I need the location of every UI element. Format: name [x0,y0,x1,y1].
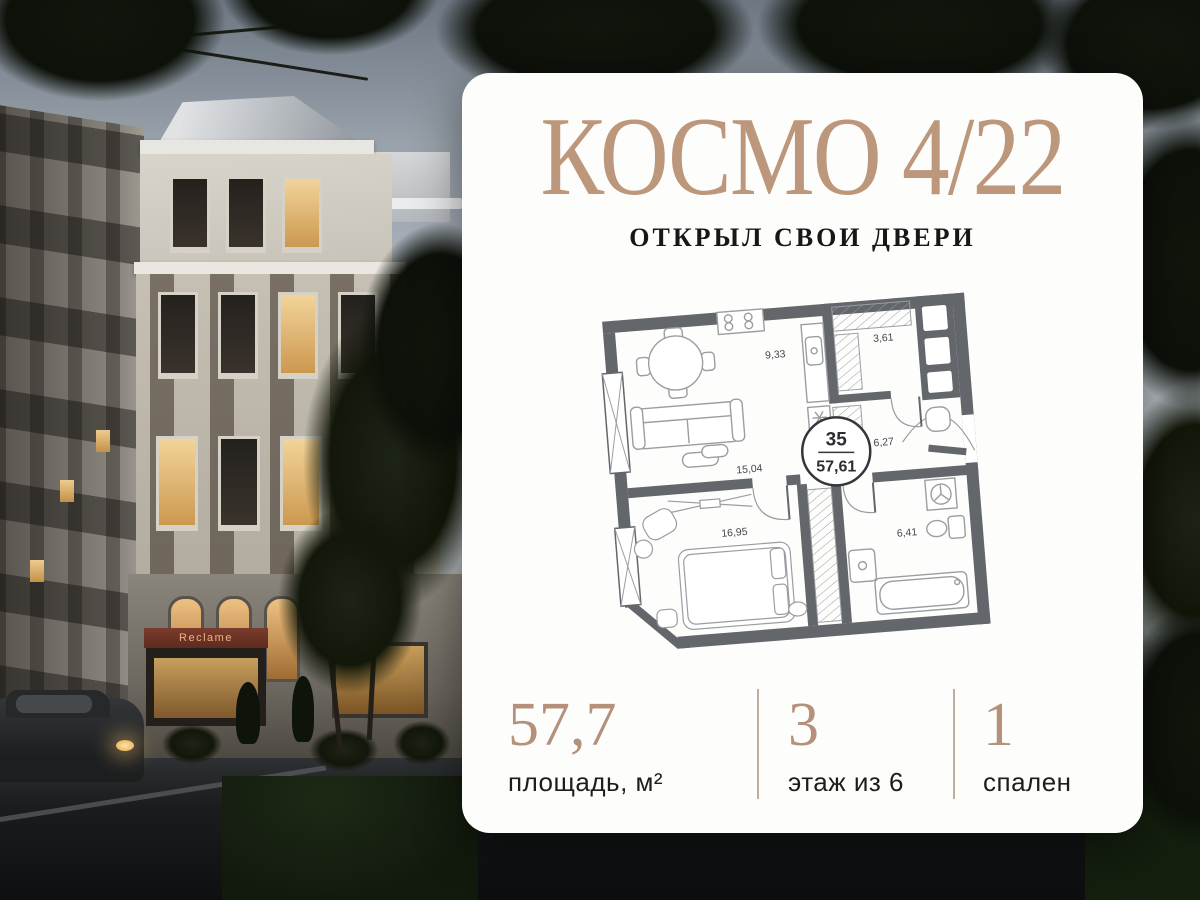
entry-door-gap [962,414,978,463]
stat-floor: 3 этаж из 6 [788,693,904,798]
unit-total-area: 57,61 [816,458,856,475]
area-label-living: 15,04 [736,462,763,476]
building-left-facade [0,104,144,780]
roof-parapet [140,140,374,154]
stats-divider [953,689,955,799]
car-windshield [16,695,92,713]
window [218,292,258,379]
brand-title: КОСМО 4/22 [513,101,1092,213]
stats-row: 57,7 площадь, м² 3 этаж из 6 1 спален [462,693,1143,813]
lit-window [60,480,74,502]
conifer-tree [236,682,260,744]
area-label-bathroom: 6,41 [896,526,917,540]
entry-pouf [925,406,951,432]
stat-bedrooms-label: спален [983,767,1072,798]
stat-floor-value: 3 [788,693,904,758]
area-label-bedroom: 16,95 [721,526,748,540]
storefront-awning: Reclame [144,628,268,648]
unit-number: 35 [826,429,848,450]
lit-window [156,436,198,531]
attic-window-row [170,176,322,253]
stats-divider [757,689,759,799]
storefront-sign: Reclame [179,632,233,644]
lawn [222,776,478,900]
coffee-tables [681,444,728,468]
lit-window [30,560,44,582]
window [218,436,260,531]
floor-plan-drawing: 9,33 3,61 6,27 15,04 16,95 6,41 35 57,61 [565,263,1019,688]
car-headlight [116,740,134,751]
window [226,176,266,253]
window [158,292,198,379]
area-label-kitchen: 9,33 [765,348,786,362]
stat-area-value: 57,7 [508,693,663,758]
floor-plan: 9,33 3,61 6,27 15,04 16,95 6,41 35 57,61 [565,263,1019,688]
unit-badge: 35 57,61 [802,417,870,485]
stat-bedrooms-value: 1 [983,693,1072,758]
brand-subtitle: ОТКРЫЛ СВОИ ДВЕРИ [462,223,1143,253]
area-label-wardrobe: 3,61 [873,331,894,345]
bathroom-fixtures [843,477,971,616]
lit-window [282,176,322,253]
window [170,176,210,253]
bush [382,712,462,774]
stat-area: 57,7 площадь, м² [508,693,663,798]
area-label-hallway: 6,27 [873,436,894,450]
lit-window [96,430,110,452]
tree-canopy [250,470,450,730]
stat-floor-label: этаж из 6 [788,767,904,798]
dining-set [634,325,717,401]
stat-bedrooms: 1 спален [983,693,1072,798]
bedroom-furniture [631,491,808,634]
stat-area-label: площадь, м² [508,767,663,798]
entry-door-leaf [928,445,966,456]
bush [150,716,234,772]
sofa [630,399,745,450]
listing-card: КОСМО 4/22 ОТКРЫЛ СВОИ ДВЕРИ [462,73,1143,833]
